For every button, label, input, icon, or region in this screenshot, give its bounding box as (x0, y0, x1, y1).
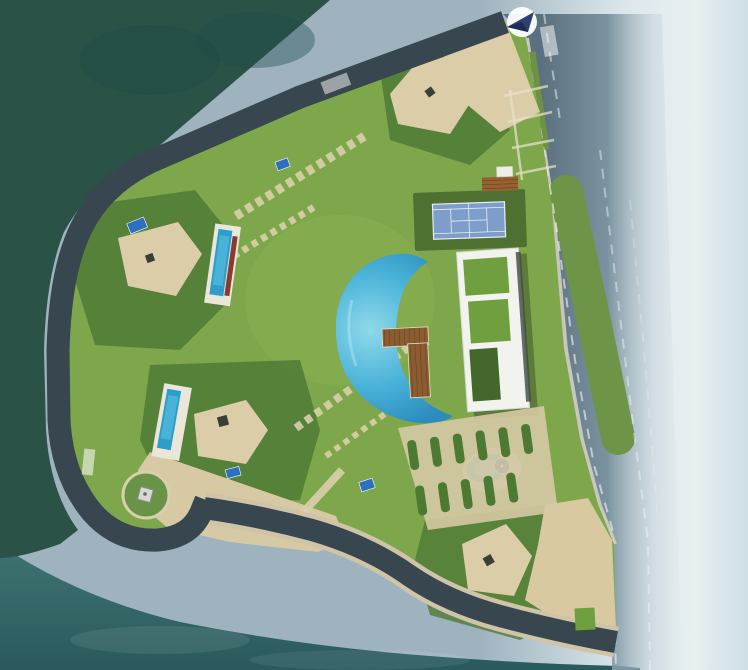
compass (507, 7, 537, 37)
gazebo-garden (123, 472, 169, 518)
roof-lawn (574, 607, 595, 630)
clubhouse-roof (456, 247, 538, 419)
central-lawn (245, 215, 435, 385)
water-streak (70, 626, 250, 654)
aerial-render (0, 0, 748, 670)
pavilion-roof (496, 166, 512, 177)
site-master-plan (0, 0, 748, 670)
tennis-court (413, 189, 527, 251)
water-streak (250, 650, 470, 670)
roof-lawn (468, 299, 511, 344)
roof-lawn (469, 348, 501, 402)
hedge-garden (398, 406, 558, 530)
roof-lawn (463, 257, 509, 296)
